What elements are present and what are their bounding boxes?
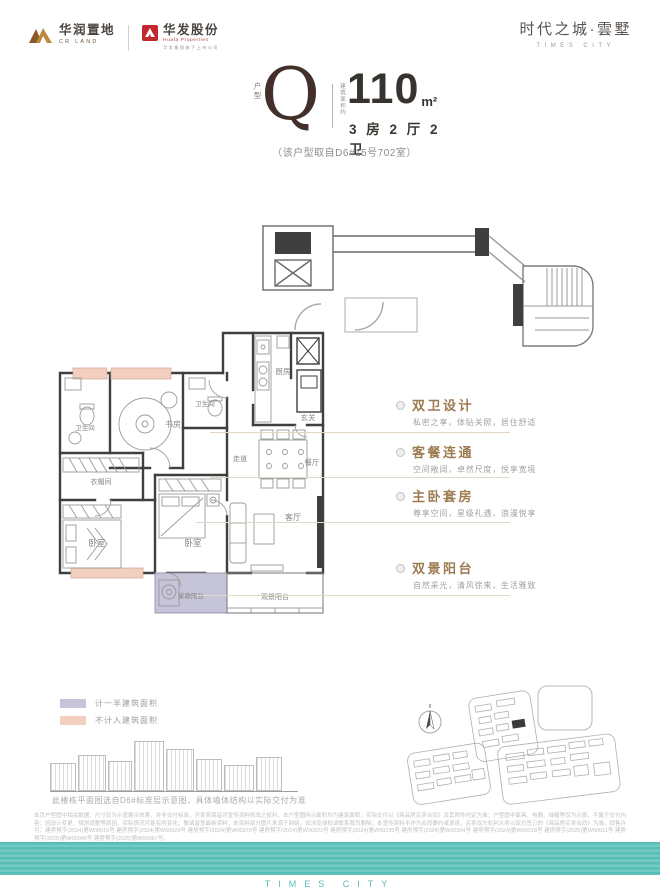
room-label-kitchen: 厨房	[276, 366, 291, 376]
site-plan	[396, 678, 640, 812]
footer-brand-en: TIMES CITY	[0, 879, 660, 889]
unit-area-note: 建筑面积约	[338, 83, 346, 116]
compass-icon	[419, 704, 441, 733]
feature-double-balcony: 双景阳台 自然采光，清风徐来，生活雅致	[396, 562, 628, 590]
site-cluster-c	[497, 733, 621, 805]
leader-line-1	[210, 432, 510, 433]
feature-dual-bath: 双卫设计 私密之享，体贴关照，居住舒适	[396, 399, 628, 427]
room-label-cloak: 衣帽间	[91, 477, 112, 486]
unit-area-value: 110	[347, 68, 419, 111]
bullet-icon	[396, 401, 405, 410]
leader-line-4	[196, 595, 510, 596]
project-brand: 时代之城·雲墅 TIMES CITY	[520, 22, 633, 49]
room-label-living: 客厅	[285, 512, 301, 522]
room-label-bedroom-left: 卧室	[88, 538, 106, 548]
view-balcony-area	[227, 573, 323, 613]
unit-type-code: Q	[261, 58, 320, 130]
feature-title: 主卧套房	[412, 490, 474, 503]
feature-master-suite: 主卧套房 尊享空间，星级礼遇，浪漫悦享	[396, 490, 628, 518]
feature-desc: 自然采光，清风徐来，生活雅致	[413, 582, 628, 590]
feature-dining-living: 客餐连通 空间敞阔，卓然尺度，悦享宽境	[396, 446, 628, 474]
half-area-swatch	[60, 699, 86, 708]
bullet-icon	[396, 448, 405, 457]
site-highlighted-building	[512, 719, 526, 729]
room-label-bedroom-mid: 卧室	[184, 538, 202, 548]
room-label-entry: 玄关	[301, 412, 316, 422]
logo-divider	[128, 25, 129, 51]
feature-desc: 尊享空间，星级礼遇，浪漫悦享	[413, 510, 628, 518]
site-cluster-b	[406, 742, 491, 806]
room-label-study: 书房	[165, 419, 181, 429]
disclaimer-text: 本页户型图中相关数据、尺寸仅为示意展示效果，并非交付标准，开发商保留对宣传资料修…	[34, 813, 626, 843]
room-label-corridor: 走道	[233, 454, 247, 463]
crland-name-cn: 华润置地	[59, 24, 115, 37]
feature-title: 双卫设计	[412, 399, 474, 412]
leader-line-2	[210, 477, 510, 478]
huafa-tagline: 华发集团旗下上市公司	[163, 46, 219, 50]
project-name-cn: 时代之城·雲墅	[520, 22, 633, 37]
bullet-icon	[396, 564, 405, 573]
crland-mountain-icon	[28, 24, 54, 48]
headline-divider	[332, 84, 333, 128]
bullet-icon	[396, 492, 405, 501]
room-label-bath1: 卫生间	[75, 423, 95, 432]
excluded-area-label: 不计入建筑面积	[95, 715, 158, 726]
excluded-area-swatch	[60, 716, 86, 725]
room-label-dining: 餐厅	[305, 458, 320, 467]
unit-source-note: （该户型取自D6#15号702室）	[237, 144, 452, 159]
half-area-label: 计一半建筑面积	[95, 698, 158, 709]
elevation-note: 此楼栋平面图选自D6#标准层示意图，具体墙体结构以实际交付为准	[52, 795, 306, 806]
feature-desc: 私密之享，体贴关照，居住舒适	[413, 419, 628, 427]
building-core	[263, 226, 593, 346]
crland-name-en: CR LAND	[59, 40, 115, 46]
feature-title: 客餐连通	[412, 446, 474, 459]
feature-desc: 空间敞阔，卓然尺度，悦享宽境	[413, 466, 628, 474]
unit-headline: 户型 Q 建筑面积约 110 m² 3 房 2 厅 2 卫 （该户型取自D6#1…	[252, 66, 452, 166]
huafa-name-cn: 华发股份	[163, 24, 219, 37]
door-swings	[95, 380, 307, 587]
room-label-view-balcony: 观景阳台	[261, 592, 289, 601]
room-label-bath2: 卫生间	[195, 399, 215, 408]
building-elevation-drawing	[50, 726, 298, 792]
site-empty-block	[538, 686, 592, 730]
footer-stripe-band	[0, 842, 660, 875]
feature-title: 双景阳台	[412, 562, 474, 575]
huafa-name-en: Huafa Properties	[163, 39, 219, 44]
huafa-logo-icon	[142, 25, 158, 41]
site-cluster-a	[468, 690, 539, 763]
leader-line-3	[196, 522, 510, 523]
project-name-en: TIMES CITY	[520, 43, 633, 49]
developer-logos: 华润置地 CR LAND 华发股份 Huafa Properties 华发集团旗…	[28, 24, 219, 51]
unit-area-unit: m²	[421, 95, 437, 108]
poster-page: 华润置地 CR LAND 华发股份 Huafa Properties 华发集团旗…	[0, 0, 660, 896]
